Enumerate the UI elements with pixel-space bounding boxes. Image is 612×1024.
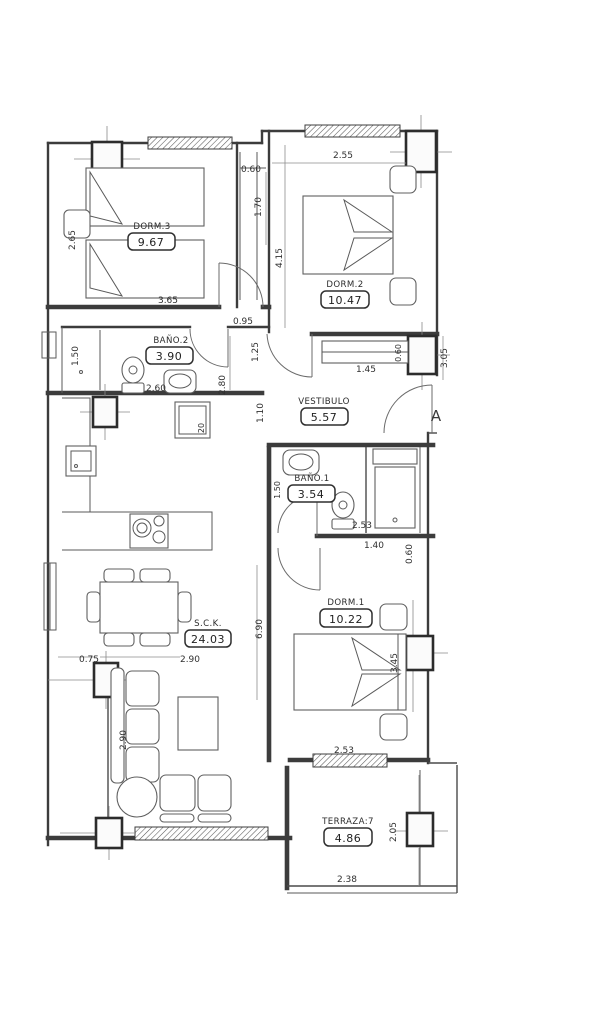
room-area: 10.22 (329, 613, 363, 626)
nightstand (380, 714, 407, 740)
door-bano2 (190, 329, 228, 367)
floor-plan-page: DORM.3 9.67 DORM.2 10.47 BAÑO.2 3.90 VES… (0, 0, 612, 1024)
chair (87, 592, 100, 622)
door-dorm2 (267, 334, 312, 377)
bed-double (303, 196, 393, 274)
sofa2-front (160, 814, 194, 822)
room-area: 10.47 (328, 294, 362, 307)
chair (140, 569, 170, 582)
dim-terraza-height: 2.05 (389, 822, 399, 842)
side-table (117, 777, 157, 817)
dim-hall-125: 1.25 (251, 342, 261, 362)
dim-dorm2-height: 4.15 (275, 248, 285, 268)
dim-vest-closet: 1.45 (356, 365, 376, 375)
chair (104, 569, 134, 582)
window-left-lower (44, 563, 56, 630)
sofa-cushion (126, 709, 159, 744)
dim-sck-height: 6.90 (255, 619, 265, 639)
room-name: VESTIBULO (298, 397, 350, 407)
dim-dorm1-width: 2.53 (334, 746, 354, 756)
room-name: DORM.2 (326, 280, 363, 290)
dim-niche-width: 0.60 (241, 165, 261, 175)
dim-dorm3-width: 3.65 (158, 296, 178, 306)
doors (190, 263, 432, 590)
nightstand (390, 278, 416, 305)
floor-plan-drawing: DORM.3 9.67 DORM.2 10.47 BAÑO.2 3.90 VES… (0, 0, 612, 1024)
toilet (122, 357, 144, 383)
room-bano2: BAÑO.2 3.90 (146, 335, 193, 364)
dim-bano1-width: 2.53 (352, 521, 372, 531)
chair (178, 592, 191, 622)
nightstand (390, 166, 416, 193)
dim-shower-width: 0.60 (405, 544, 415, 564)
dim-bano1-left: 1.50 (273, 481, 282, 499)
room-name: TERRAZA:7 (321, 817, 374, 827)
door-dorm1 (278, 548, 320, 590)
room-area: 3.90 (156, 350, 183, 363)
room-dorm3: DORM.3 9.67 (128, 222, 175, 250)
dim-sofa-depth: 2.90 (119, 730, 129, 750)
pillar (394, 775, 448, 886)
dim-dorm2-width: 2.55 (333, 151, 353, 161)
chair (140, 633, 170, 646)
window-left-upper (42, 332, 56, 358)
door-entry (384, 385, 432, 433)
shower-tray (375, 467, 415, 528)
pillar (60, 806, 136, 860)
coffee-table (178, 697, 218, 750)
room-dorm1: DORM.1 10.22 (320, 598, 372, 627)
furniture-living (111, 668, 231, 822)
bed-single-1 (86, 168, 204, 226)
shelf (373, 449, 417, 464)
chair (104, 633, 134, 646)
window-living (135, 827, 268, 840)
section-marker-a: A (431, 407, 442, 425)
dim-sck-offset: 0.75 (79, 655, 99, 665)
furniture-kitchen (62, 398, 212, 550)
dim-hall-width: 0.95 (233, 317, 253, 327)
dim-bano1-140: 1.40 (364, 541, 384, 551)
door-dorm3 (219, 263, 263, 307)
sofa-cushion (126, 747, 159, 782)
dim-bano2-width: 2.60 (146, 384, 166, 394)
room-sck: S.C.K. 24.03 (185, 619, 231, 647)
dim-vest-060: 0.60 (394, 344, 403, 362)
room-name: BAÑO.1 (294, 473, 329, 484)
room-dorm2: DORM.2 10.47 (321, 280, 369, 308)
room-name: DORM.1 (327, 598, 364, 608)
sofa2-front (198, 814, 231, 822)
stove (130, 514, 168, 548)
window-dorm3 (148, 137, 232, 149)
dim-appliance: 20 (197, 423, 206, 433)
window-dorm2 (305, 125, 400, 137)
room-area: 4.86 (335, 832, 362, 845)
furniture-dining (87, 569, 191, 646)
room-name: S.C.K. (194, 619, 222, 629)
room-area: 24.03 (191, 633, 225, 646)
dim-sck-width: 2.90 (180, 655, 200, 665)
dim-dorm1-height: 3.45 (390, 653, 400, 673)
dim-closet-left: 1.50 (71, 346, 81, 366)
dim-terraza-width: 2.38 (337, 875, 357, 885)
sofa-cushion (126, 671, 159, 706)
room-bano1: BAÑO.1 3.54 (288, 473, 335, 502)
room-name: BAÑO.2 (153, 335, 188, 346)
sofa2-cushion (160, 775, 195, 811)
dim-dorm3-bed: 2.65 (68, 230, 78, 250)
nightstand (380, 604, 407, 630)
closet-left (80, 371, 83, 374)
room-terraza: TERRAZA:7 4.86 (321, 817, 374, 846)
sofa2-cushion (198, 775, 231, 811)
room-area: 3.54 (298, 488, 325, 501)
dim-right-wall: 3.05 (440, 348, 450, 368)
room-name: DORM.3 (133, 222, 170, 232)
dim-vest-pass: 1.10 (256, 403, 266, 423)
room-area: 9.67 (138, 236, 165, 249)
room-area: 5.57 (311, 411, 338, 424)
dim-niche-height: 1.70 (254, 197, 264, 217)
dining-table (100, 582, 178, 633)
dim-bano2-height: 2.80 (218, 375, 228, 395)
sofa-back (111, 668, 124, 783)
room-vestibulo: VESTIBULO 5.57 (298, 397, 350, 425)
